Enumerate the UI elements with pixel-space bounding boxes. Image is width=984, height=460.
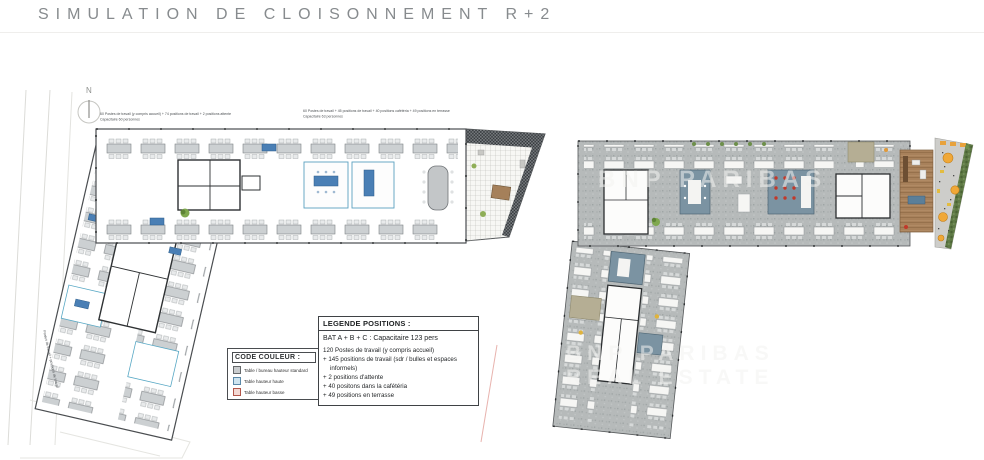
desk-row [102, 134, 458, 159]
legende-positions: LEGENDE POSITIONS : BAT A + B + C : Capa… [318, 316, 479, 406]
swatch-basse [233, 388, 241, 396]
legend-item-label: Table / bureau hauteur standard [244, 368, 308, 373]
terrace-table [491, 185, 511, 200]
plan-left-terrace [466, 129, 545, 241]
legende-positions-title: LEGENDE POSITIONS : [319, 317, 478, 331]
annotation-line: Capacitaire 63 personnes [303, 115, 343, 119]
cafeteria [900, 150, 933, 232]
north-arrow-icon [78, 100, 100, 123]
umbrella [939, 213, 948, 222]
high-table-blue [262, 144, 276, 151]
plan-right-bar [578, 141, 910, 246]
core-room [178, 160, 240, 210]
slide: SIMULATION DE CLOISONNEMENT R+2 [0, 0, 984, 460]
meeting-room-blue-1 [304, 162, 348, 208]
north-label: N [86, 86, 92, 95]
legend-item: Table / bureau hauteur standard [233, 366, 315, 374]
desk-row [584, 145, 834, 168]
legend-item: Table hauteur haute [233, 377, 315, 385]
code-couleur-title: CODE COULEUR : [232, 352, 316, 363]
meeting-room-slate [637, 333, 663, 355]
core-room [242, 176, 260, 190]
focus-room-khaki [848, 142, 874, 162]
floor-plans-graphic [0, 0, 984, 460]
meeting-room-blue-2 [352, 162, 394, 208]
cafeteria-table [908, 196, 925, 204]
plan-left-bar [96, 129, 466, 243]
legend-item-label: Table hauteur basse [244, 390, 285, 395]
legend-item: Table hauteur basse [233, 388, 315, 396]
positions-line: + 49 positions en terrasse [323, 392, 474, 401]
high-table-blue [150, 218, 164, 225]
meeting-room-red-chairs [768, 170, 814, 214]
legende-positions-body: BAT A + B + C : Capacitaire 123 pers 120… [319, 331, 478, 405]
legend-item-label: Table hauteur haute [244, 379, 284, 384]
focus-room-khaki [569, 295, 601, 320]
plan-right-rendered [553, 138, 973, 439]
positions-line: + 2 positions d'attente [323, 374, 474, 383]
plant [181, 209, 190, 218]
positions-line: + 145 positions de travail (sdr / bulles… [323, 356, 474, 374]
umbrella [951, 186, 959, 194]
code-couleur-legend: CODE COULEUR : Table / bureau hauteur st… [227, 348, 321, 400]
annotation-line: 60 Postes de travail + 45 positions de t… [303, 110, 450, 114]
annotation-line: 60 Postes de travail (y compris accueil)… [100, 113, 231, 117]
umbrella [943, 153, 953, 163]
plan-right-terrace [935, 138, 973, 249]
swatch-haute [233, 377, 241, 385]
positions-line: 120 Postes de travail (y compris accueil… [323, 347, 474, 356]
umbrella [938, 235, 944, 241]
plan-left-annotation-1: 60 Postes de travail (y compris accueil)… [100, 112, 231, 123]
plan-right-wing [553, 241, 690, 438]
plan-left-annotation-2: 60 Postes de travail + 45 positions de t… [303, 109, 450, 120]
meeting-room-slate-a [680, 170, 710, 214]
positions-line: + 40 positons dans la cafétéria [323, 383, 474, 392]
reference-line-pink [481, 345, 497, 442]
swatch-standard [233, 366, 241, 374]
page-title: SIMULATION DE CLOISONNEMENT R+2 [38, 6, 556, 24]
capacity-line: BAT A + B + C : Capacitaire 123 pers [323, 335, 474, 342]
annotation-line: Capacitaire 60 personnes [100, 118, 140, 122]
